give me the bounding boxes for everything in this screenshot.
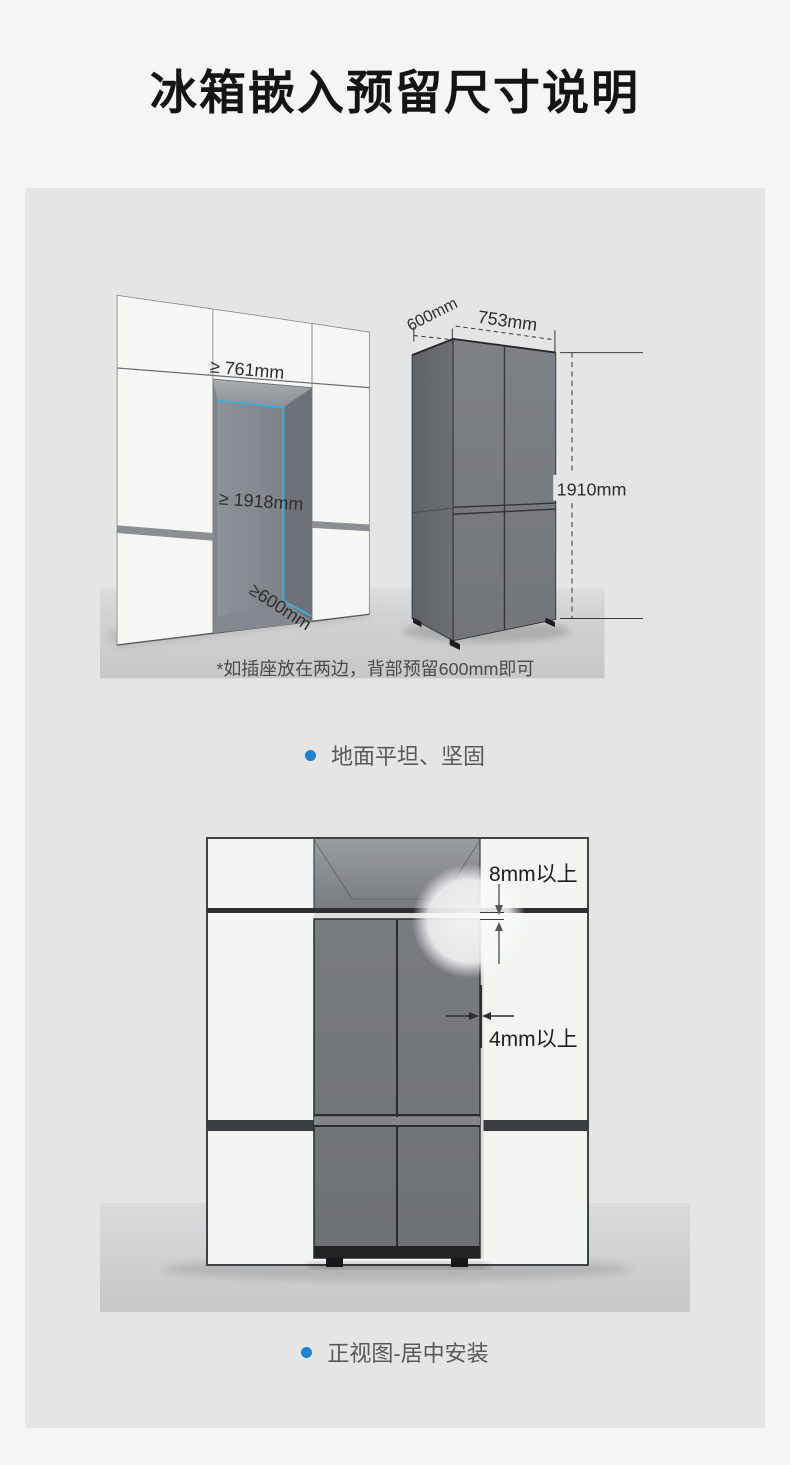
cabinet-gap-line	[207, 908, 588, 913]
caption-text: 地面平坦、坚固	[331, 739, 485, 771]
fridge-height-label: 1910mm	[557, 479, 627, 499]
fridge-base	[314, 1246, 480, 1258]
bullet-icon	[305, 750, 316, 761]
top-scene-illustration: ≥ 761mm ≥ 1918mm ≥600mm 600mm 753mm 1910…	[100, 240, 690, 720]
cabinet-band-right	[483, 1120, 588, 1131]
caption-front-view: 正视图-居中安装	[25, 1338, 765, 1366]
fridge-width-label: 753mm	[477, 307, 539, 335]
caption-text: 正视图-居中安装	[327, 1336, 488, 1368]
bullet-icon	[301, 1347, 312, 1358]
cabinet-band-left	[207, 1120, 314, 1131]
top-scene-footnote: *如插座放在两边，背部预留600mm即可	[216, 659, 534, 679]
top-gap-label: 8mm以上	[489, 863, 578, 886]
page-title: 冰箱嵌入预留尺寸说明	[0, 54, 790, 123]
fridge-3d	[412, 339, 556, 650]
caption-floor-flat: 地面平坦、坚固	[25, 741, 765, 769]
side-gap-label: 4mm以上	[489, 1028, 578, 1051]
bottom-scene-illustration: 8mm以上 4mm以上	[100, 830, 690, 1320]
